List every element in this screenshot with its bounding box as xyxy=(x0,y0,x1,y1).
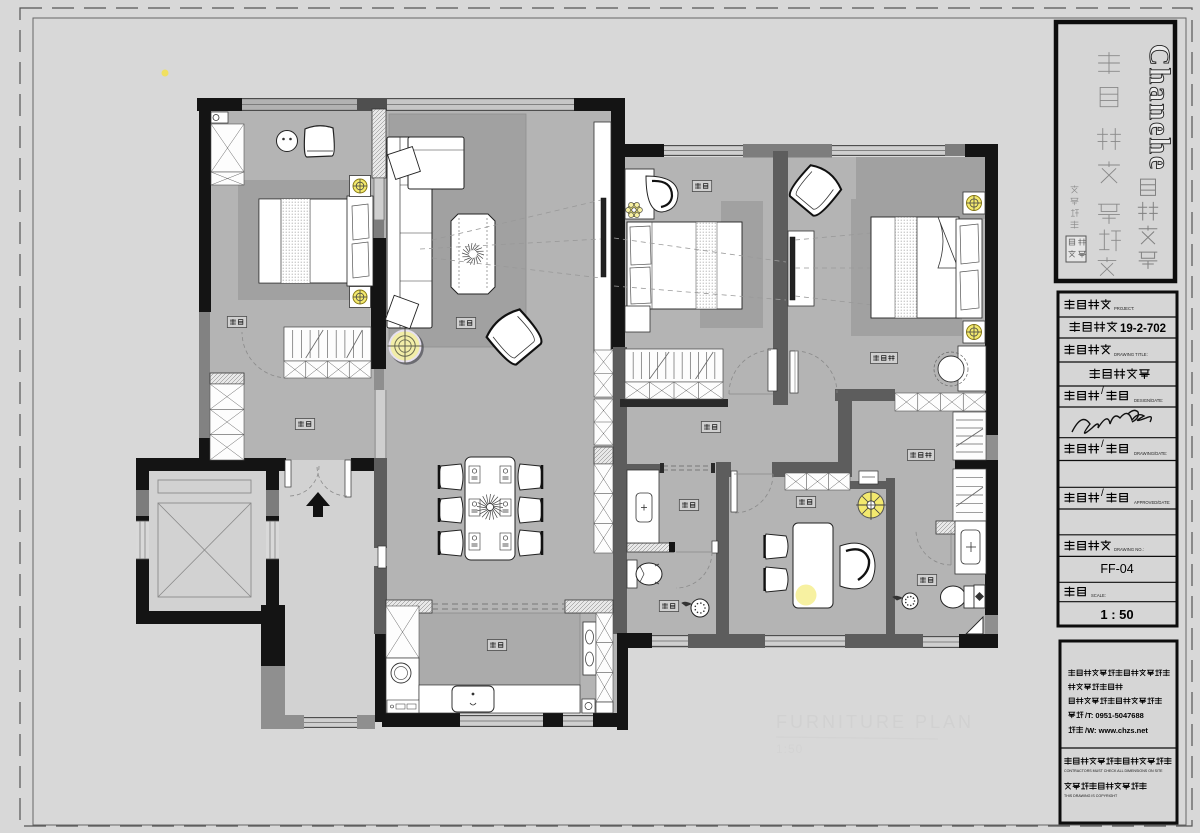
svg-text:19-2-702: 19-2-702 xyxy=(1120,323,1166,335)
svg-text:APPROVED/DATE:: APPROVED/DATE: xyxy=(1134,500,1170,505)
svg-text:/: / xyxy=(1101,488,1104,499)
svg-text:/T: 0951-5047688: /T: 0951-5047688 xyxy=(1085,711,1144,720)
svg-text:SCALE:: SCALE: xyxy=(1091,593,1106,598)
svg-text:DESIGN/DATE:: DESIGN/DATE: xyxy=(1134,398,1163,403)
svg-text:DRAWING NO.:: DRAWING NO.: xyxy=(1114,547,1144,552)
svg-text:DRAWING TITLE:: DRAWING TITLE: xyxy=(1114,352,1148,357)
svg-text:CONTRACTORS MUST CHECK ALL DIM: CONTRACTORS MUST CHECK ALL DIMENSIONS ON… xyxy=(1064,769,1163,773)
svg-text:Chanehe: Chanehe xyxy=(1143,44,1176,171)
svg-text:1 : 50: 1 : 50 xyxy=(1100,607,1133,622)
svg-text:FURNITURE PLAN: FURNITURE PLAN xyxy=(776,712,974,732)
svg-text:DRAWING/DATE:: DRAWING/DATE: xyxy=(1134,451,1167,456)
svg-text:/: / xyxy=(1101,386,1104,397)
svg-text:THIS DRAWING IS COPYRIGHT: THIS DRAWING IS COPYRIGHT xyxy=(1064,794,1118,798)
svg-text:/: / xyxy=(1101,439,1104,450)
svg-text:1:50: 1:50 xyxy=(776,742,803,756)
svg-text:FF-04: FF-04 xyxy=(1100,562,1133,576)
svg-text:PROJECT:: PROJECT: xyxy=(1114,306,1134,311)
svg-text:/W: www.chzs.net: /W: www.chzs.net xyxy=(1085,726,1148,735)
